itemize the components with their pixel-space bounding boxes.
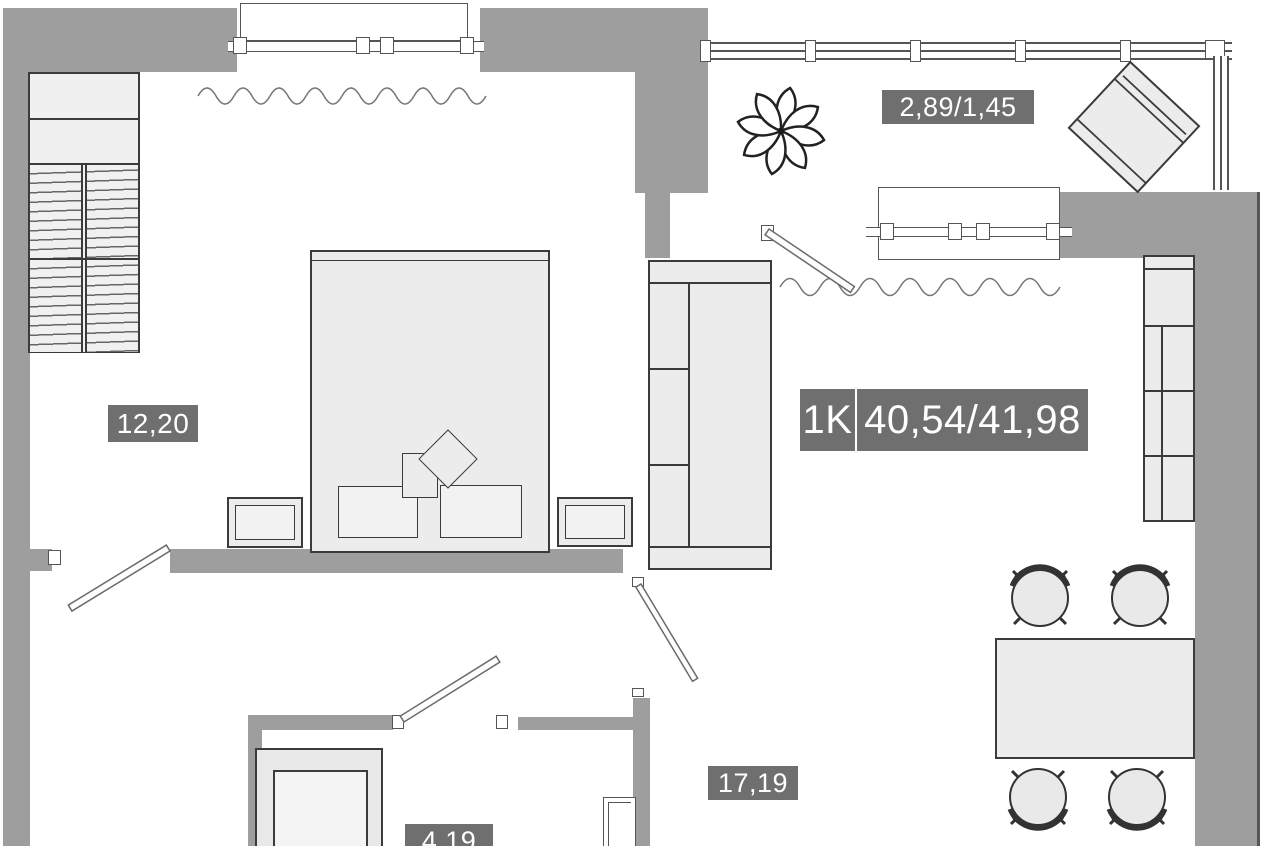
counter-divider-vertical [1161,325,1163,520]
nightstand-left [227,497,303,548]
door-jamb [392,715,404,729]
window-handle [948,223,962,240]
floor-plan: 1K 40,54/41,98 2,89/1,45 12,20 17,19 4,1… [0,0,1280,846]
apartment-type-badge: 1K [800,389,855,451]
wardrobe-rail-section [30,165,138,260]
window-sill [240,3,468,41]
curtain-kitchen [780,279,1060,296]
wardrobe-shelf [30,120,138,165]
kitchen-counter [1143,255,1195,522]
wall-segment [1195,255,1260,846]
chair [1010,769,1066,829]
apartment-area-badge: 40,54/41,98 [857,389,1088,451]
wall-segment [635,8,708,193]
railing-top [702,42,1232,60]
wardrobe [28,72,140,353]
railing-right [1213,56,1229,190]
sofa-back-cushion-divider [650,464,688,466]
counter-divider [1145,325,1193,327]
sofa-back-cushion-divider [650,368,688,370]
railing-post [700,40,711,62]
window-handle [380,37,394,54]
chair [1109,769,1165,829]
door-jamb [632,577,644,587]
balcony-area-badge: 2,89/1,45 [882,90,1034,124]
nightstand-right [557,497,633,547]
railing-post [1120,40,1131,62]
nightstand-top [235,505,295,540]
wall-segment [3,8,237,72]
counter-edge [1145,257,1193,270]
dining-table [995,638,1195,759]
wall-segment [248,715,393,730]
door-leaf-bathroom [400,656,500,722]
window-handle [460,37,474,54]
window-handle [976,223,990,240]
nightstand-top [565,505,625,539]
window-handle [356,37,370,54]
window-sill [878,187,1060,260]
wall-segment [518,717,637,730]
sofa [648,260,772,570]
railing-post [805,40,816,62]
wardrobe-rail-section [30,260,138,352]
wall-segment [1060,192,1260,258]
door-leaf-inner-line [608,802,631,846]
bathroom-area-badge: 4,19 [405,824,493,846]
sofa-armrest-top [650,262,770,284]
bed-pillow [440,485,522,538]
wall-segment [3,8,30,846]
curtain-bedroom [198,88,486,104]
window-handle [1046,223,1060,240]
door-jamb [496,715,508,729]
window-frame [866,227,1072,237]
wardrobe-shelf [30,74,138,120]
wardrobe-divider [81,165,87,258]
plant-icon [736,86,826,176]
railing-post [910,40,921,62]
wardrobe-divider [81,260,87,352]
chair [1012,566,1068,626]
window-handle [880,223,894,240]
armchair [1069,62,1199,192]
counter-divider [1145,390,1193,392]
bed-footboard [312,252,548,261]
wall-outline [1257,192,1260,846]
door-leaf-vertical [603,797,636,846]
chair [1112,566,1168,626]
door-jamb [761,225,774,241]
living-area-badge: 17,19 [708,766,798,800]
door-leaf-bedroom-entry [68,545,170,611]
apartment-label: 1K 40,54/41,98 [800,389,1088,451]
wall-segment [645,193,670,258]
sofa-backrest [650,284,690,546]
sofa-armrest-bottom [650,546,770,568]
wall-segment [480,8,635,72]
window-handle [233,37,247,54]
counter-divider [1145,455,1193,457]
door-jamb [632,688,644,697]
bedroom-area-badge: 12,20 [108,405,198,442]
door-jamb [48,550,61,565]
door-leaf-balcony [765,229,854,292]
door-leaf-hall [636,584,698,681]
railing-post [1015,40,1026,62]
shower-tray [273,770,368,846]
